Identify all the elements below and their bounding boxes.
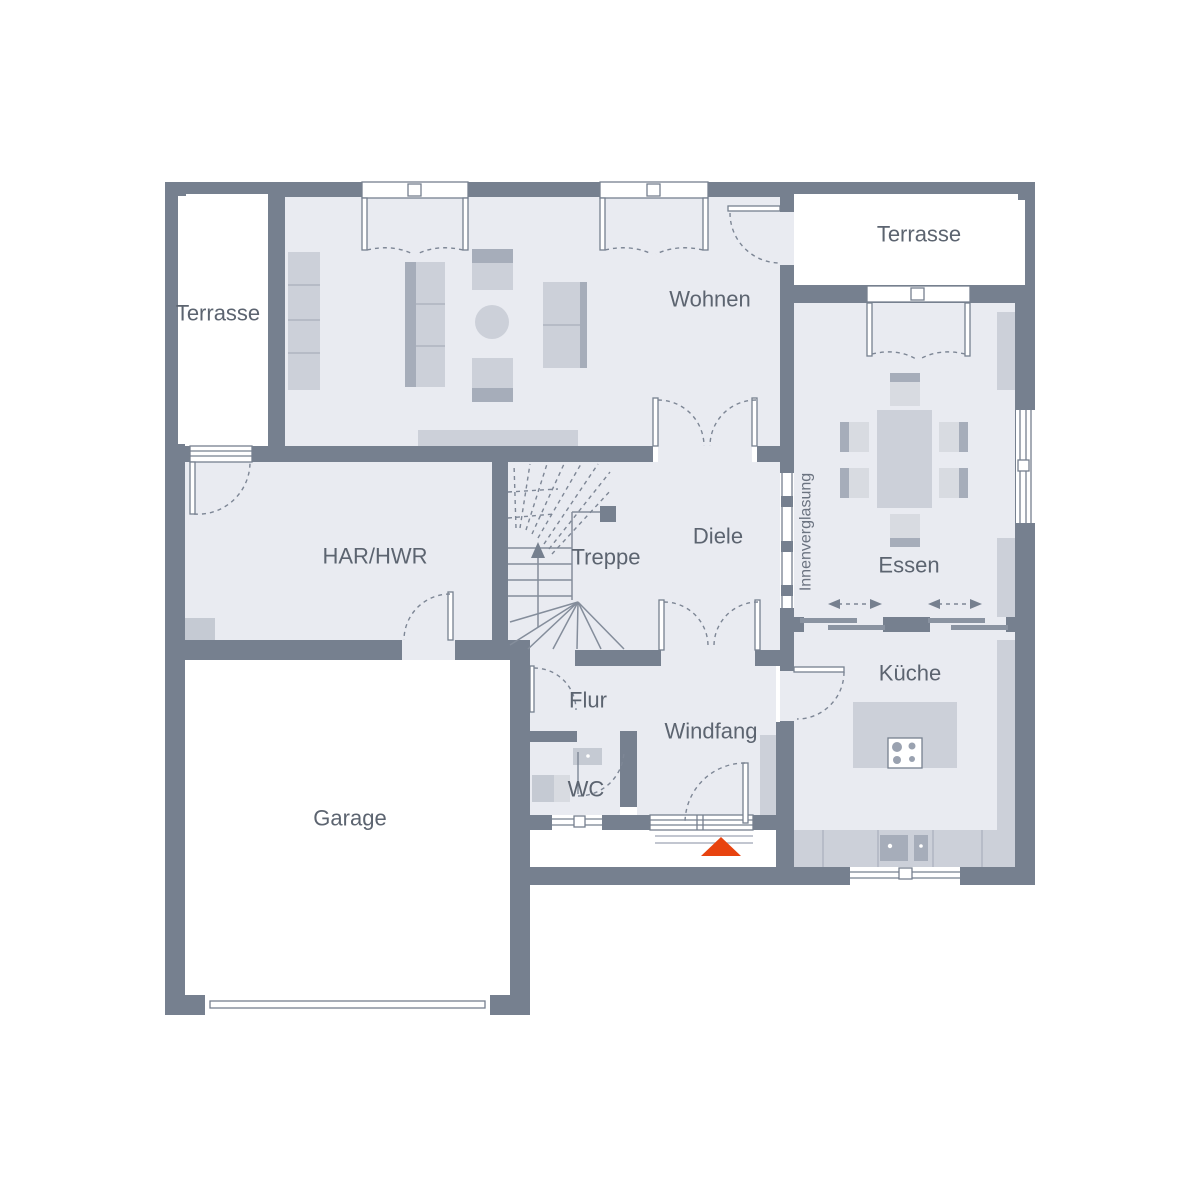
wall-garage-north xyxy=(165,640,510,660)
wall-wohnen-treppe xyxy=(508,446,653,462)
double-door-2-leaf-right xyxy=(755,600,760,650)
door-flur-leaf xyxy=(530,666,534,712)
door-kueche-leaf xyxy=(794,667,844,672)
chair-west-2 xyxy=(849,468,869,498)
terrace-left-door-leaf xyxy=(190,462,195,514)
opening-windfang-kueche xyxy=(780,671,794,721)
window-wc-handle-icon xyxy=(574,816,585,827)
sideboard-1 xyxy=(997,312,1016,390)
wall-east xyxy=(1015,303,1035,885)
interior-glazing xyxy=(780,473,794,608)
entry-door xyxy=(650,815,753,830)
terrace-right-door-leaf xyxy=(728,206,780,211)
window-essen-handle-icon xyxy=(1018,460,1029,471)
armchair-north-back xyxy=(472,249,513,263)
entry-door-leaf xyxy=(743,763,748,823)
double-door-2-leaf-left xyxy=(659,600,664,650)
wall-wohnen-har xyxy=(285,446,492,462)
corner-notch-left xyxy=(172,182,186,196)
wall-terrace-left xyxy=(268,182,285,462)
opening-wohnen-terrace xyxy=(780,212,794,265)
tall-cabinet xyxy=(997,640,1016,830)
sink xyxy=(880,835,908,861)
terrace-left-door xyxy=(190,446,252,462)
room-label-treppe: Treppe xyxy=(572,545,641,570)
dining-table xyxy=(877,410,932,508)
chair-east-2 xyxy=(939,468,959,498)
french-door-3-leaf-left xyxy=(867,303,872,356)
coffee-table xyxy=(475,305,509,339)
sideboard-2 xyxy=(997,538,1016,617)
garage-door-panel xyxy=(210,1001,485,1008)
chair-west-1 xyxy=(849,422,869,452)
opening-diele-windfang xyxy=(661,650,755,666)
floor-diele xyxy=(655,462,780,650)
french-door-2-leaf-left xyxy=(600,198,605,250)
opening-treppe-flur xyxy=(530,650,575,666)
wall-treppe-west xyxy=(492,446,508,666)
wardrobe-windfang xyxy=(760,735,778,815)
floor-flur-opening xyxy=(618,666,637,731)
door-har-garage-leaf xyxy=(448,592,453,640)
french-door-1-handle-icon xyxy=(408,184,421,196)
chair-south xyxy=(890,514,920,538)
floor-plan-drawing: Terrasse Wohnen Terrasse HAR/HWR Treppe … xyxy=(0,0,1200,1200)
wall-sliding-pier xyxy=(883,617,930,632)
french-door-3-handle-icon xyxy=(911,288,924,300)
corner-notch-right xyxy=(1018,186,1035,200)
opening-wohnen-diele xyxy=(658,446,752,462)
armchair-north xyxy=(472,263,513,290)
room-label-har-hwr: HAR/HWR xyxy=(322,544,427,569)
double-door-1-leaf-right xyxy=(752,398,757,446)
wall-diele-windfang xyxy=(575,650,661,666)
opening-wc xyxy=(577,731,620,742)
floor-plan-page: Terrasse Wohnen Terrasse HAR/HWR Treppe … xyxy=(0,0,1200,1200)
cooktop xyxy=(888,738,922,768)
wall-wc-windfang xyxy=(620,731,637,807)
room-label-wc: WC xyxy=(568,777,605,802)
armchair-south-back xyxy=(472,388,513,402)
lowboard xyxy=(418,430,578,446)
window-kueche-handle-icon xyxy=(899,868,912,879)
french-door-2-handle-icon xyxy=(647,184,660,196)
sofa2-back xyxy=(580,282,587,368)
french-door-1-leaf-right xyxy=(463,198,468,250)
room-label-terrasse-left: Terrasse xyxy=(176,301,260,326)
french-door-2-leaf-right xyxy=(703,198,708,250)
opening-har-garage xyxy=(402,640,455,660)
double-door-1-leaf-left xyxy=(653,398,658,446)
chair-north xyxy=(890,382,920,406)
room-label-diele: Diele xyxy=(693,524,743,549)
sink-drainer xyxy=(914,835,928,861)
french-door-3-leaf-right xyxy=(965,303,970,356)
room-label-flur: Flur xyxy=(569,688,607,713)
parapet-east-terrace xyxy=(1025,182,1035,303)
wall-wc-north xyxy=(530,731,577,742)
room-label-essen: Essen xyxy=(878,553,939,578)
room-label-windfang: Windfang xyxy=(665,719,758,744)
room-label-garage: Garage xyxy=(313,806,386,831)
room-label-kueche: Küche xyxy=(879,661,941,686)
room-label-wohnen: Wohnen xyxy=(669,287,751,312)
sofa-back xyxy=(405,262,416,387)
armchair-south xyxy=(472,358,513,388)
chair-east-1 xyxy=(939,422,959,452)
wc-toilet xyxy=(532,775,554,802)
french-door-1-leaf-left xyxy=(362,198,367,250)
shelf xyxy=(288,252,320,390)
stair-newel xyxy=(600,506,616,522)
glazing-label: Innenverglasung xyxy=(798,473,815,591)
wall-entry xyxy=(753,815,794,830)
room-label-terrasse-right: Terrasse xyxy=(877,222,961,247)
sofa-seat xyxy=(416,262,445,387)
